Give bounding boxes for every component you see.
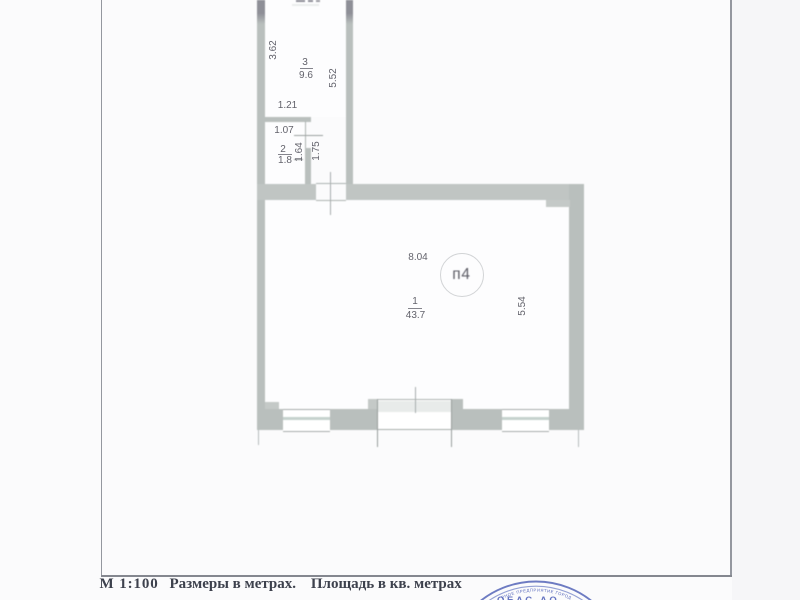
svg-text:ОБАС АО.: ОБАС АО.	[497, 595, 565, 600]
